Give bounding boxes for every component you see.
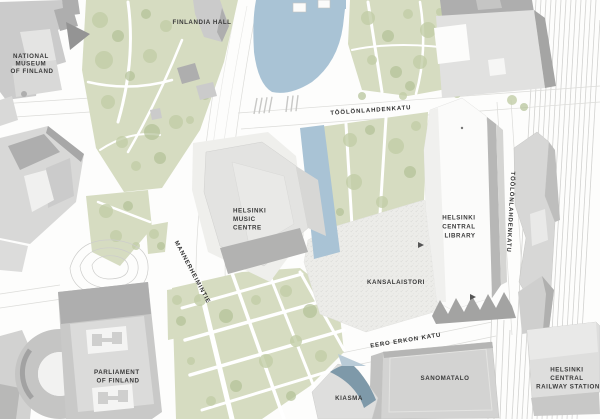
kansalaistori-label: KANSALAISTORI xyxy=(367,279,425,286)
parliament-building xyxy=(58,282,162,419)
northeast-office-building xyxy=(434,0,556,98)
kiasma-label: KIASMA xyxy=(335,395,363,402)
bay-pool xyxy=(330,0,346,9)
bay-pier xyxy=(293,3,306,12)
parliament-label: PARLIAMENT OF FINLAND xyxy=(94,369,142,385)
bay-pier xyxy=(318,0,330,8)
finlandia-hall-label: FINLANDIA HALL xyxy=(172,19,231,26)
helsinki-central-library-label: HELSINKI CENTRAL LIBRARY xyxy=(442,215,478,240)
national-museum-label: NATIONAL MUSEUM OF FINLAND xyxy=(11,53,54,75)
sanomatalo-label: SANOMATALO xyxy=(421,375,470,382)
helsinki-site-plan-map: NATIONAL MUSEUM OF FINLAND FINLANDIA HAL… xyxy=(0,0,600,419)
site-plan-page: NATIONAL MUSEUM OF FINLAND FINLANDIA HAL… xyxy=(0,0,600,419)
